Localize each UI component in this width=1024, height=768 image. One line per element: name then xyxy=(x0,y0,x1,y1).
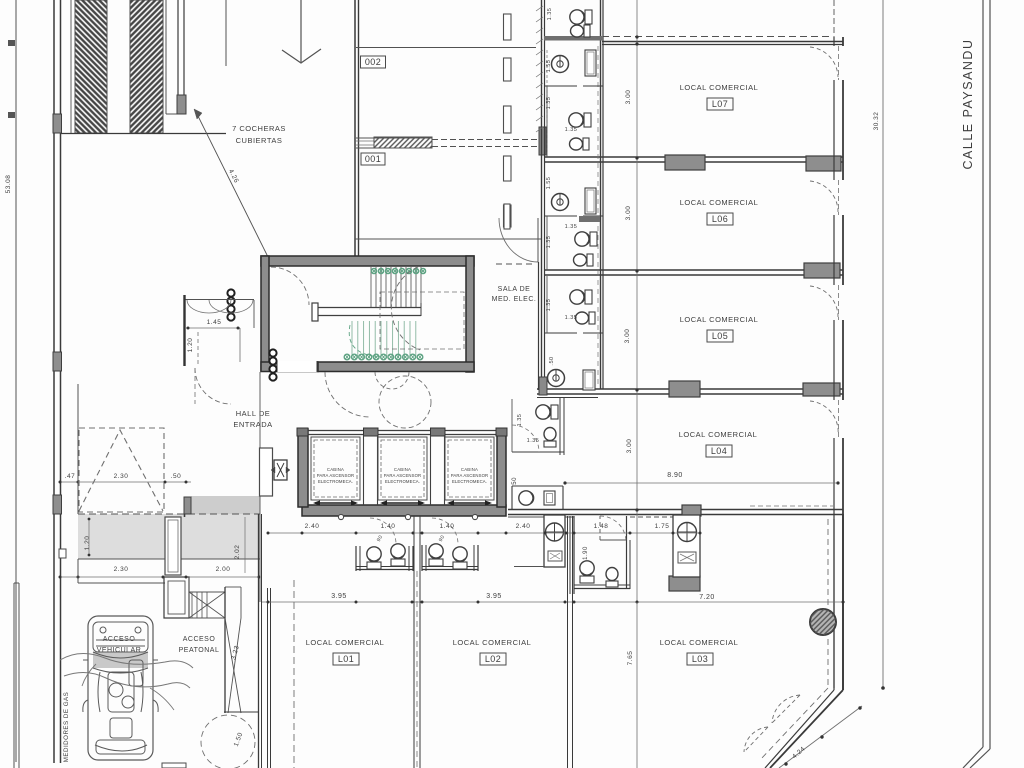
svg-text:1.35: 1.35 xyxy=(565,224,578,230)
svg-text:PARA ASCENSOR: PARA ASCENSOR xyxy=(384,473,422,478)
svg-text:PARA ASCENSOR: PARA ASCENSOR xyxy=(317,473,355,478)
svg-text:3.00: 3.00 xyxy=(625,206,632,221)
svg-text:1.35: 1.35 xyxy=(517,414,523,427)
svg-text:LOCAL COMERCIAL: LOCAL COMERCIAL xyxy=(680,83,759,92)
svg-text:L01: L01 xyxy=(338,654,354,664)
svg-text:ELECTROMECA.: ELECTROMECA. xyxy=(385,479,420,484)
svg-text:L06: L06 xyxy=(712,214,728,224)
svg-text:MED. ELEC.: MED. ELEC. xyxy=(492,296,537,303)
svg-text:CUBIERTAS: CUBIERTAS xyxy=(236,136,283,145)
svg-text:8.90: 8.90 xyxy=(667,472,683,479)
svg-text:PEATONAL: PEATONAL xyxy=(179,647,220,654)
svg-text:7.65: 7.65 xyxy=(627,651,634,666)
svg-text:L07: L07 xyxy=(712,99,728,109)
svg-text:1.55: 1.55 xyxy=(546,177,552,190)
svg-text:LOCAL COMERCIAL: LOCAL COMERCIAL xyxy=(680,198,759,207)
svg-text:1.20: 1.20 xyxy=(187,338,194,353)
svg-text:CABINA: CABINA xyxy=(461,467,478,472)
svg-text:LOCAL COMERCIAL: LOCAL COMERCIAL xyxy=(453,638,532,647)
svg-text:2.40: 2.40 xyxy=(516,523,531,530)
svg-text:1.48: 1.48 xyxy=(594,523,609,530)
svg-text:30.32: 30.32 xyxy=(873,112,880,131)
svg-text:SALA DE: SALA DE xyxy=(498,286,531,293)
svg-text:.50: .50 xyxy=(512,477,518,487)
svg-text:PARA ASCENSOR: PARA ASCENSOR xyxy=(451,473,489,478)
svg-text:LOCAL COMERCIAL: LOCAL COMERCIAL xyxy=(660,638,739,647)
svg-text:CABINA: CABINA xyxy=(394,467,411,472)
svg-text:LOCAL COMERCIAL: LOCAL COMERCIAL xyxy=(680,315,759,324)
svg-text:ELECTROMECA.: ELECTROMECA. xyxy=(452,479,487,484)
svg-text:1.75: 1.75 xyxy=(655,523,670,530)
svg-text:ENTRADA: ENTRADA xyxy=(233,420,272,429)
svg-text:7.20: 7.20 xyxy=(699,594,715,601)
svg-text:2.40: 2.40 xyxy=(305,523,320,530)
svg-text:CABINA: CABINA xyxy=(327,467,344,472)
svg-text:3.00: 3.00 xyxy=(626,439,633,454)
svg-text:1.40: 1.40 xyxy=(440,523,455,530)
svg-text:ACCESO: ACCESO xyxy=(183,636,216,643)
svg-text:.50: .50 xyxy=(171,473,182,480)
svg-text:.47: .47 xyxy=(65,473,76,480)
svg-text:3.95: 3.95 xyxy=(486,593,502,600)
svg-text:LOCAL COMERCIAL: LOCAL COMERCIAL xyxy=(679,430,758,439)
svg-text:3.00: 3.00 xyxy=(624,329,631,344)
svg-text:L05: L05 xyxy=(712,331,728,341)
svg-text:1.45: 1.45 xyxy=(207,319,222,326)
svg-text:1.40: 1.40 xyxy=(381,523,396,530)
svg-text:002: 002 xyxy=(365,57,381,67)
svg-text:1.35: 1.35 xyxy=(527,438,540,444)
svg-text:1.20: 1.20 xyxy=(84,536,91,551)
svg-text:2.30: 2.30 xyxy=(114,473,129,480)
svg-text:.50: .50 xyxy=(549,356,555,365)
svg-text:7 COCHERAS: 7 COCHERAS xyxy=(232,124,286,133)
svg-text:CALLE PAYSANDU: CALLE PAYSANDU xyxy=(961,39,975,170)
svg-text:1.35: 1.35 xyxy=(547,8,553,21)
svg-text:L02: L02 xyxy=(485,654,501,664)
svg-text:1.35: 1.35 xyxy=(565,127,578,133)
svg-text:LOCAL COMERCIAL: LOCAL COMERCIAL xyxy=(306,638,385,647)
svg-text:53.08: 53.08 xyxy=(5,175,12,194)
svg-text:3.95: 3.95 xyxy=(331,593,347,600)
svg-text:3.00: 3.00 xyxy=(625,90,632,105)
svg-text:MEDIDORES DE GAS: MEDIDORES DE GAS xyxy=(63,692,70,763)
svg-text:1.35: 1.35 xyxy=(565,315,578,321)
svg-text:1.90: 1.90 xyxy=(583,546,589,560)
svg-text:HALL DE: HALL DE xyxy=(236,409,271,418)
svg-text:001: 001 xyxy=(365,154,381,164)
svg-text:VEHICULAR: VEHICULAR xyxy=(97,647,142,654)
svg-text:ELECTROMECA.: ELECTROMECA. xyxy=(318,479,353,484)
svg-text:L04: L04 xyxy=(711,446,727,456)
svg-text:2.30: 2.30 xyxy=(114,566,129,573)
svg-text:2.02: 2.02 xyxy=(234,545,241,560)
svg-text:2.00: 2.00 xyxy=(216,566,231,573)
svg-text:L03: L03 xyxy=(692,654,708,664)
